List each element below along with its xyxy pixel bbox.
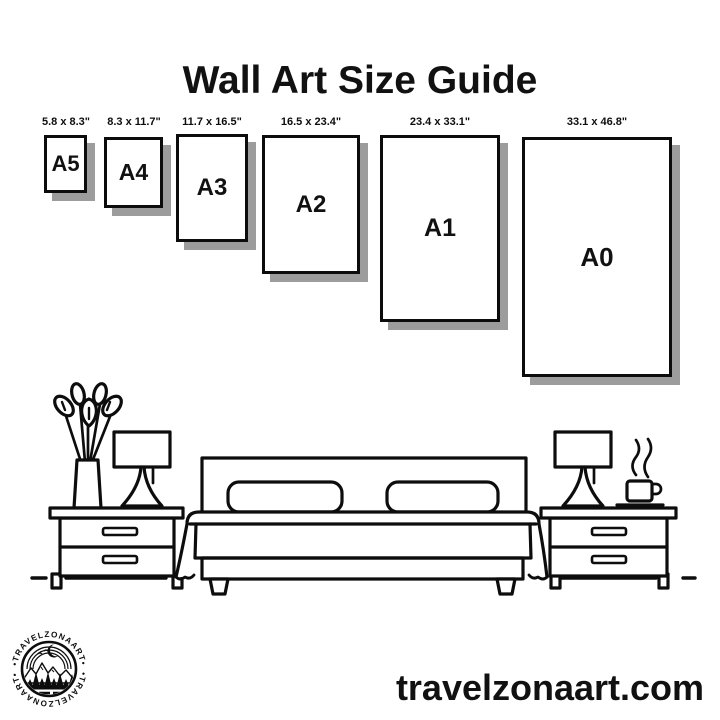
page-title: Wall Art Size Guide: [0, 59, 720, 103]
nightstand-right: [541, 508, 676, 588]
paper-box-a2: A2: [262, 135, 360, 274]
brand-logo: •TRAVELZONAART• •TRAVELZONAART•: [10, 626, 88, 712]
paper-box-a5: A5: [44, 135, 87, 193]
bed-foot-left: [210, 579, 228, 594]
paper-label-a1: A1: [424, 214, 456, 243]
paper-label-a0: A0: [580, 242, 613, 273]
paper-label-a4: A4: [119, 159, 148, 186]
paper-label-a2: A2: [296, 191, 327, 219]
nightstand-left: [50, 508, 183, 588]
bedroom-illustration: [0, 378, 720, 610]
paper-box-a4: A4: [104, 137, 163, 208]
pillow-left: [228, 482, 342, 512]
bed-foot-right: [497, 579, 515, 594]
pillow-right: [387, 482, 498, 512]
size-dims-a1: 23.4 x 33.1": [385, 116, 495, 128]
bed: [176, 458, 547, 594]
paper-box-a1: A1: [380, 135, 500, 322]
paper-label-a5: A5: [51, 151, 79, 177]
coffee-cup-icon: [617, 439, 663, 505]
bed-base: [202, 558, 523, 579]
paper-box-a0: A0: [522, 137, 672, 377]
paper-label-a3: A3: [197, 174, 228, 202]
website-url: travelzonaart.com: [380, 667, 720, 709]
size-dims-a2: 16.5 x 23.4": [256, 116, 366, 128]
lamp-right-icon: [555, 432, 611, 506]
size-dims-a3: 11.7 x 16.5": [157, 116, 267, 128]
lamp-left-icon: [114, 432, 170, 506]
paper-box-a3: A3: [176, 134, 248, 242]
size-dims-a0: 33.1 x 46.8": [542, 116, 652, 128]
